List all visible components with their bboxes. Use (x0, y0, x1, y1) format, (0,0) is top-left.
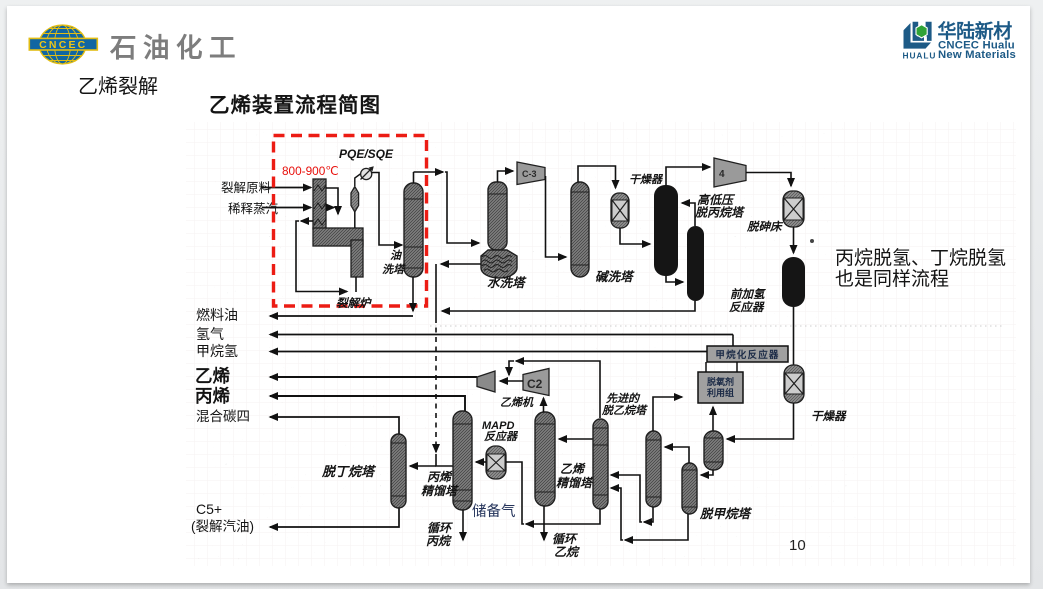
svg-text:乙烯装置流程简图: 乙烯装置流程简图 (209, 93, 381, 117)
svg-text:乙烯裂解: 乙烯裂解 (78, 75, 158, 98)
svg-text:脱氧剂: 脱氧剂 (707, 376, 734, 387)
svg-text:脱乙烷塔: 脱乙烷塔 (601, 404, 648, 417)
svg-text:循环: 循环 (427, 521, 453, 535)
svg-text:乙烯: 乙烯 (195, 366, 230, 386)
svg-text:脱丁烷塔: 脱丁烷塔 (321, 464, 377, 479)
svg-text:4: 4 (719, 169, 725, 180)
svg-text:C5+: C5+ (196, 501, 222, 517)
svg-text:干燥器: 干燥器 (629, 173, 664, 186)
svg-text:乙烯: 乙烯 (560, 462, 586, 476)
svg-text:储备气: 储备气 (472, 503, 516, 520)
svg-text:脱甲烷塔: 脱甲烷塔 (699, 507, 753, 521)
svg-text:丙烯: 丙烯 (427, 470, 453, 484)
svg-text:稀释蒸汽: 稀释蒸汽 (228, 201, 279, 216)
svg-text:石油化工: 石油化工 (109, 33, 242, 63)
svg-text:HUALU: HUALU (903, 51, 937, 61)
svg-text:乙烷: 乙烷 (554, 545, 580, 559)
svg-text:甲烷氢: 甲烷氢 (196, 343, 238, 359)
svg-text:C-3: C-3 (522, 169, 537, 179)
svg-text:丙烯: 丙烯 (195, 386, 230, 406)
svg-text:也是同样流程: 也是同样流程 (835, 268, 949, 290)
svg-text:(裂解汽油): (裂解汽油) (191, 519, 254, 534)
svg-text:洗塔: 洗塔 (382, 263, 406, 276)
svg-text:甲烷化反应器: 甲烷化反应器 (715, 349, 779, 361)
svg-text:反应器: 反应器 (484, 430, 519, 443)
svg-text:C2: C2 (527, 377, 543, 391)
svg-text:干燥器: 干燥器 (811, 410, 847, 423)
svg-text:脱砷床: 脱砷床 (746, 221, 784, 234)
svg-text:New Materials: New Materials (938, 49, 1016, 61)
svg-text:乙烯机: 乙烯机 (500, 396, 534, 409)
svg-text:燃料油: 燃料油 (196, 307, 238, 323)
svg-text:循环: 循环 (552, 532, 578, 546)
svg-text:碱洗塔: 碱洗塔 (595, 270, 635, 284)
svg-text:脱丙烷塔: 脱丙烷塔 (694, 206, 745, 220)
svg-text:丙烷脱氢、丁烷脱氢: 丙烷脱氢、丁烷脱氢 (835, 247, 1006, 269)
svg-text:PQE/SQE: PQE/SQE (339, 147, 394, 161)
svg-text:800-900℃: 800-900℃ (282, 164, 339, 178)
svg-text:10: 10 (789, 537, 806, 554)
svg-text:氢气: 氢气 (196, 326, 224, 342)
svg-text:CNCEC: CNCEC (39, 39, 87, 51)
svg-text:利用组: 利用组 (706, 387, 734, 398)
svg-text:先进的: 先进的 (606, 392, 641, 405)
svg-text:丙烷: 丙烷 (426, 534, 452, 548)
svg-text:混合碳四: 混合碳四 (196, 409, 250, 424)
svg-text:反应器: 反应器 (729, 300, 765, 314)
svg-text:前加氢: 前加氢 (730, 288, 766, 301)
svg-text:精馏塔: 精馏塔 (556, 476, 594, 490)
svg-text:精馏塔: 精馏塔 (421, 484, 459, 498)
svg-text:裂解炉: 裂解炉 (336, 297, 372, 310)
svg-text:水洗塔: 水洗塔 (487, 276, 527, 290)
